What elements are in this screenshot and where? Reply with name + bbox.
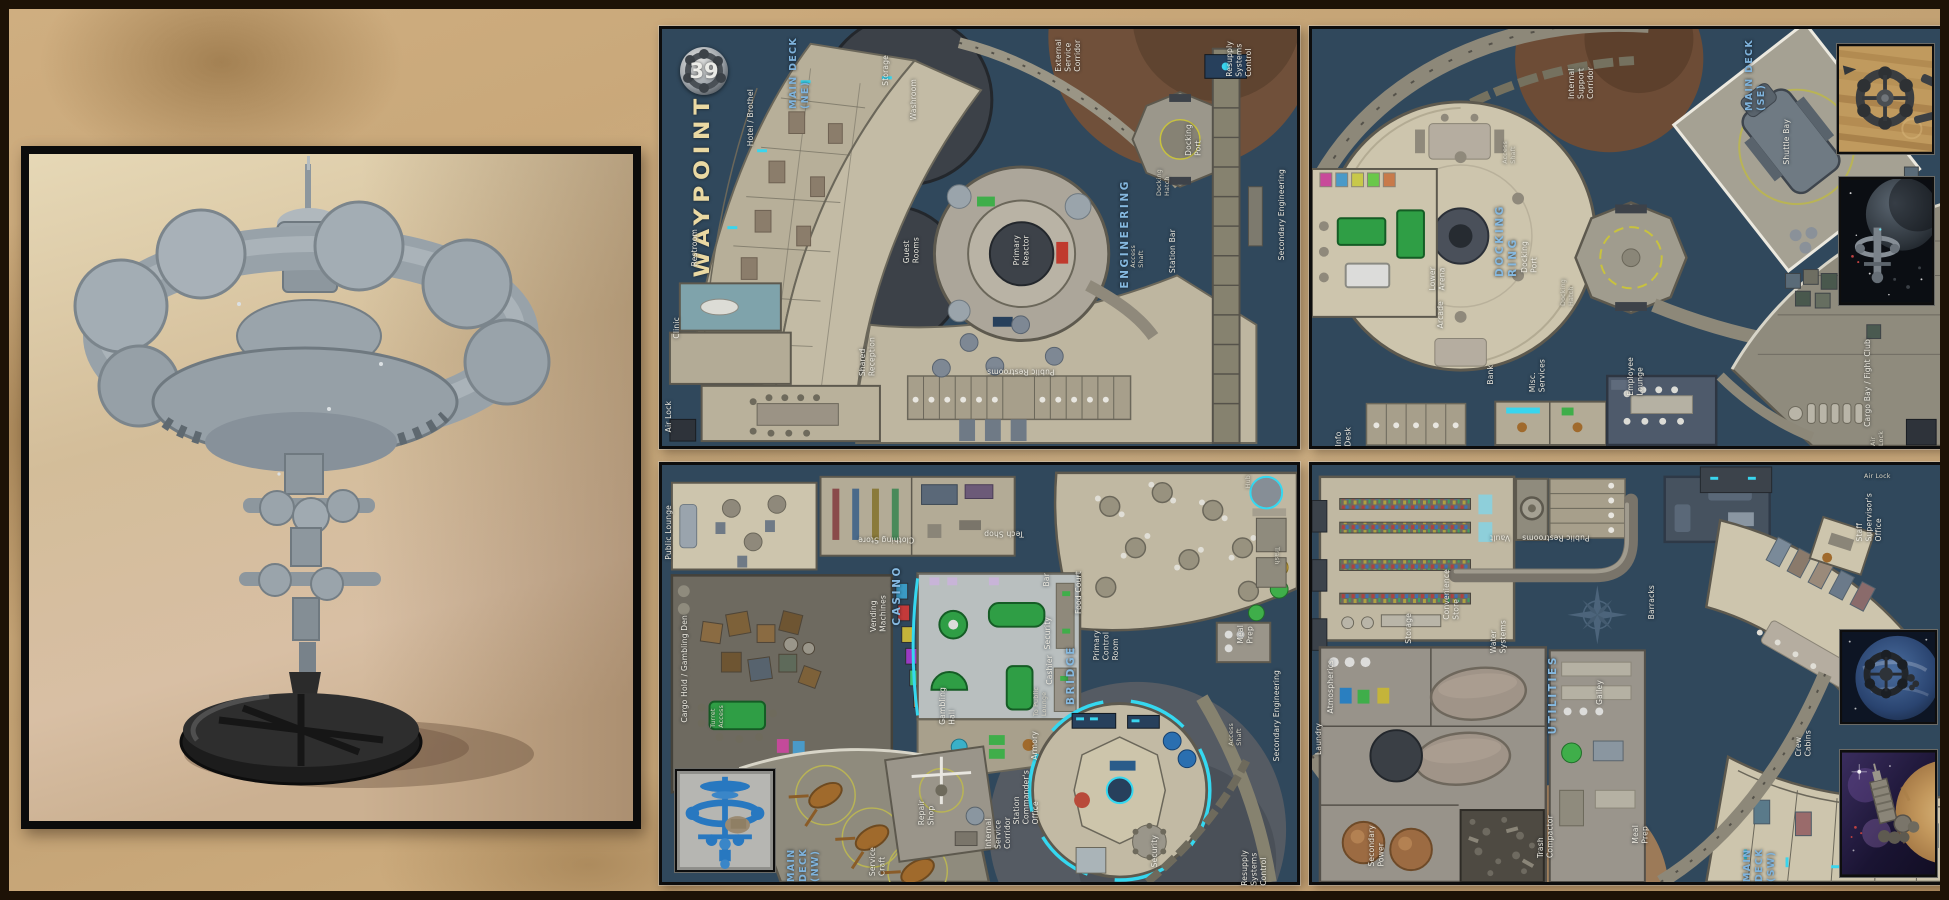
map-label: Gambling Hall <box>938 687 957 725</box>
map-label: Galley <box>1595 680 1604 705</box>
map-label: Bar <box>1042 573 1051 586</box>
map-label: Internal Service Corridor <box>984 817 1012 849</box>
tile-sw-labels: Public RestroomsVaultConvenience StoreSt… <box>1312 465 1949 882</box>
map-tile-main-deck-se: MAIN DECK (SE)Internal Support CorridorS… <box>1309 26 1949 449</box>
map-label: Service Craft <box>868 847 887 876</box>
map-label: Cargo Hold / Gambling Den <box>680 615 689 723</box>
map-label: DOCKING RING <box>1494 204 1520 277</box>
map-label: Docking Hatch <box>1156 169 1172 196</box>
map-label: Air Lock <box>1870 427 1886 446</box>
map-label: Restroom <box>690 229 699 266</box>
map-label: Storage <box>881 55 890 86</box>
map-label: Access Shaft <box>1130 245 1146 268</box>
map-label: Info Desk <box>1334 427 1353 446</box>
map-label: Internal Support Corridor <box>1567 67 1595 99</box>
map-label: Arcade <box>1436 301 1445 328</box>
map-label: Cashier <box>1045 655 1054 685</box>
map-label: Vending Machines <box>869 595 888 632</box>
map-label: UTILITIES <box>1547 655 1560 734</box>
map-label: MAIN DECK (NE) <box>788 37 812 109</box>
map-label: Secondary Power <box>1367 825 1386 867</box>
map-label: Water Systems <box>1489 620 1508 653</box>
composite-sheet: 39 WAYPOINT MAIN DECK (NE)Hotel / Brothe… <box>0 0 1949 900</box>
map-label: Cargo Bay / Fight Club <box>1863 339 1872 427</box>
map-label: Repair Shop <box>917 800 936 825</box>
map-label: Primary Reactor <box>1012 235 1031 265</box>
map-label: Public Restrooms <box>987 367 1054 376</box>
map-label: Public Restrooms <box>1522 533 1589 542</box>
miniature-photo-art <box>29 154 633 821</box>
map-label: Resupply Systems Control <box>1225 41 1253 77</box>
map-label: Meal Prep <box>1631 825 1650 844</box>
tile-nw-labels: Public LoungeCargo Hold / Gambling DenCl… <box>662 465 1297 882</box>
map-label: MAIN DECK (SE) <box>1744 39 1768 111</box>
map-label: Docking Port <box>1520 241 1539 273</box>
map-label: External Service Corridor <box>1054 39 1082 72</box>
map-label: Employee Lounge <box>1626 357 1645 396</box>
map-label: Meal Prep <box>1236 625 1255 644</box>
map-label: Turret Access <box>710 705 726 728</box>
map-label: Clothing Store <box>858 535 914 544</box>
map-label: Docking Hatch <box>1560 279 1576 306</box>
map-label: Access Shaft <box>1502 141 1518 164</box>
map-label: Hotel / Brothel <box>746 89 755 146</box>
map-label: Trash <box>1272 547 1280 565</box>
map-label: BRIDGE <box>1065 645 1078 705</box>
map-label: Barracks <box>1647 585 1656 619</box>
map-label: Shared Reception <box>858 337 877 376</box>
tile-ne-labels: MAIN DECK (NE)Hotel / BrothelStorageWash… <box>662 29 1297 446</box>
map-label: Laundry <box>1314 723 1323 755</box>
map-label: Station Bar <box>1168 229 1177 273</box>
map-label: Hub <box>1245 475 1253 488</box>
map-label: ENGINEERING <box>1119 179 1132 289</box>
map-tile-main-deck-ne: 39 WAYPOINT MAIN DECK (NE)Hotel / Brothe… <box>659 26 1300 449</box>
map-label: Shuttle Bay <box>1782 119 1791 165</box>
map-label: Access Shaft <box>1228 723 1244 746</box>
map-label: Crew Cabins <box>1794 730 1813 757</box>
map-label: Storage <box>1404 613 1413 644</box>
map-label: Docking Port <box>1184 124 1203 156</box>
map-label: Convenience Store <box>1442 569 1461 620</box>
map-label: Food Court <box>1074 571 1083 614</box>
map-label: Public Lounge <box>664 505 673 560</box>
map-label: Staff Supervisor's Office <box>1855 493 1883 541</box>
map-label: Washroom <box>909 79 918 120</box>
tile-se-labels: MAIN DECK (SE)Internal Support CorridorS… <box>1312 29 1949 446</box>
map-label: MAIN DECK (SW) <box>1742 835 1778 882</box>
map-label: Trash Compactor <box>1536 815 1555 858</box>
map-label: Tech Shop <box>984 529 1024 538</box>
map-tile-main-deck-nw: Public LoungeCargo Hold / Gambling DenCl… <box>659 462 1300 885</box>
map-label: Bank <box>1486 365 1495 385</box>
map-label: Clinic <box>672 317 681 339</box>
map-label: Security <box>1150 835 1159 867</box>
map-label: Armory <box>1030 731 1039 760</box>
map-label: Air Lock <box>664 401 673 432</box>
map-label: Lower Arena <box>1428 267 1447 290</box>
map-label: Misc. Services <box>1528 359 1547 392</box>
map-label: Vault <box>1490 533 1510 542</box>
map-label: MAIN DECK (NW) <box>786 837 822 882</box>
map-label: To Public Lounge <box>1033 687 1049 716</box>
map-label: Secondary Engineering <box>1277 169 1286 260</box>
map-label: Primary Control Room <box>1092 630 1120 660</box>
map-label: Station Commander's Office <box>1012 770 1040 824</box>
map-label: CASINO <box>891 565 904 626</box>
miniature-photo <box>21 146 641 829</box>
map-label: Resupply Systems Control <box>1240 850 1268 886</box>
map-tile-main-deck-sw: Public RestroomsVaultConvenience StoreSt… <box>1309 462 1949 885</box>
map-label: Secondary Engineering <box>1272 670 1281 761</box>
map-label: Air Lock <box>1864 473 1891 481</box>
map-label: Security <box>1043 617 1052 649</box>
map-label: Guest Rooms <box>902 237 921 263</box>
map-label: Atmospherics <box>1326 660 1335 713</box>
